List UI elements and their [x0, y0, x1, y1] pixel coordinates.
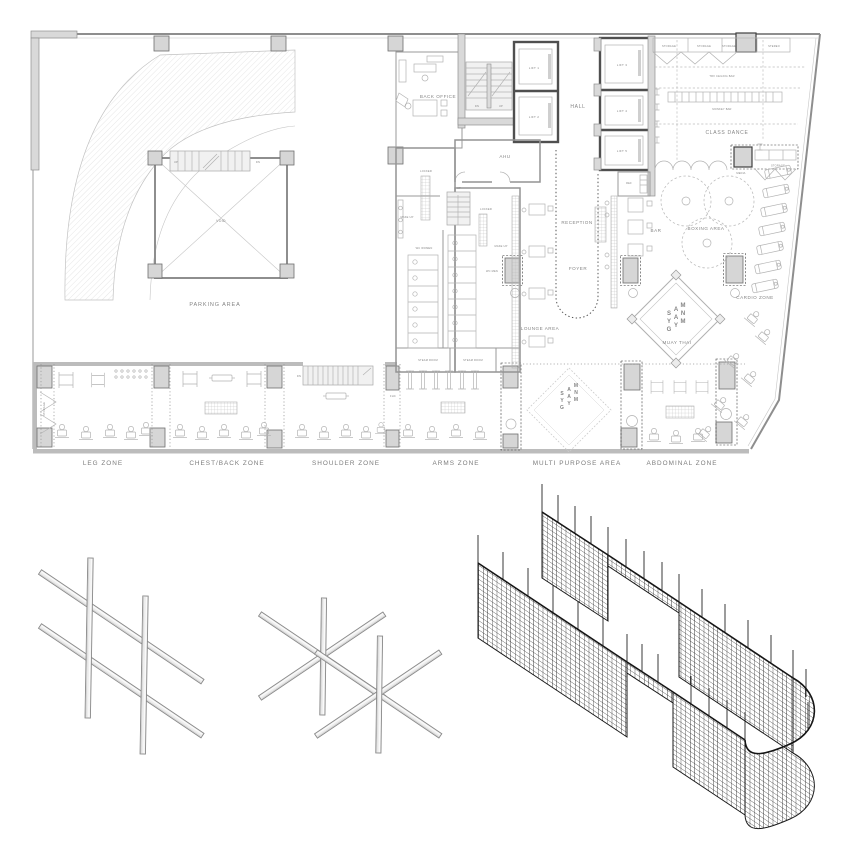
boxing-area: BOXING AREA	[661, 176, 754, 268]
svg-text:M: M	[681, 303, 686, 309]
svg-text:M: M	[574, 383, 578, 389]
back-office-furniture	[396, 56, 447, 116]
floor-plan-drawing: PARKING AREA VOID UP DN FHC	[0, 0, 850, 850]
svg-text:Y: Y	[674, 323, 678, 329]
label-cardio: CARDIO ZONE	[736, 295, 773, 300]
label-core-dn: DN	[475, 104, 479, 108]
label-stereo: STEREO	[768, 44, 780, 48]
label-lift-2: LIFT 2	[529, 115, 539, 119]
label-zone-chest: CHEST/BACK ZONE	[189, 460, 264, 467]
ring-monogram-2: S Y G A A Y M N M	[560, 383, 578, 411]
label-storage-2: STORAGE	[697, 44, 711, 48]
label-ref: REF	[626, 181, 632, 185]
label-trx: TRX CEILING BAR	[709, 74, 734, 78]
toilet-stalls	[408, 235, 476, 348]
svg-text:A: A	[567, 387, 571, 393]
label-back-office: BACK OFFICE	[420, 94, 456, 99]
muay-thai-ring: S Y G A A Y M N M MUAY THAI	[627, 270, 725, 368]
svg-text:G: G	[667, 327, 672, 333]
svg-text:S: S	[667, 311, 671, 317]
label-bar: BAR	[651, 228, 662, 233]
label-zone-leg: LEG ZONE	[83, 460, 123, 467]
label-monkey-bar: MONKEY BAR	[712, 107, 731, 111]
axon-star-frame	[259, 598, 442, 753]
label-hall: HALL	[570, 104, 585, 110]
label-reception: RECEPTION	[561, 220, 592, 225]
label-stair-up: UP	[174, 160, 178, 164]
label-makeup-r: MAKE UP	[494, 244, 507, 248]
label-void: VOID	[216, 219, 226, 223]
svg-text:Y: Y	[560, 398, 564, 404]
svg-text:A: A	[674, 315, 679, 321]
label-lift-1: LIFT 1	[529, 66, 539, 70]
label-steam-1: STEAM ROOM	[418, 358, 438, 362]
gym-floorplan-sheet: PARKING AREA VOID UP DN FHC	[0, 0, 850, 850]
label-core-up: UP	[499, 104, 503, 108]
label-fhc: FHC	[390, 394, 396, 398]
label-foyer: FOYER	[569, 266, 588, 271]
svg-text:A: A	[674, 307, 679, 313]
svg-text:M: M	[681, 319, 686, 325]
label-lift-4: LIFT 4	[617, 109, 627, 113]
lounge-wall	[512, 196, 519, 368]
label-lift-3: LIFT 3	[617, 63, 627, 67]
locker-wc-block: LOCKER MAKE UP WC WOMEN UP LOCKER MAKE U…	[396, 148, 520, 372]
label-lift-5: LIFT 5	[617, 149, 627, 153]
strip-stair: DN	[297, 366, 373, 385]
label-wc-women: WC WOMEN	[416, 246, 433, 250]
label-makeup-l: MAKE UP	[400, 215, 413, 219]
label-parking: PARKING AREA	[189, 302, 240, 308]
monkey-bar-frame	[668, 92, 782, 102]
label-zone-multi... arms: ARMS ZONE	[433, 460, 480, 467]
label-storage-3: STORAGE	[722, 44, 736, 48]
label-steam-2: STEAM ROOM	[463, 358, 483, 362]
label-class-dance: CLASS DANCE	[706, 130, 749, 136]
label-wc-men: WC MEN	[486, 269, 498, 273]
foyer-path	[556, 150, 598, 318]
label-storage-1: STORAGE	[662, 44, 676, 48]
label-zone-abdominal: ABDOMINAL ZONE	[647, 460, 718, 467]
axon-mesh-wall	[478, 484, 814, 829]
lift-bank-left: LIFT 1 LIFT 2	[514, 42, 558, 142]
ahu-room: AHU	[455, 140, 540, 182]
label-stair-dn: DN	[256, 160, 260, 164]
curtain-arcs	[655, 161, 727, 170]
parking-stair: UP DN	[170, 151, 260, 171]
locker-stair: UP	[447, 186, 470, 225]
folding-doors	[653, 52, 737, 64]
svg-text:Y: Y	[667, 319, 671, 325]
parking-area: PARKING AREA VOID UP DN	[65, 50, 295, 308]
label-muay-thai: MUAY THAI	[662, 340, 691, 345]
label-lounge: LOUNGE AREA	[521, 326, 560, 331]
svg-text:A: A	[567, 394, 571, 400]
label-storage-4: STORAGE	[771, 164, 785, 168]
label-zone-multi: MULTI PURPOSE AREA	[533, 460, 622, 467]
label-locker-r: LOCKER	[480, 207, 492, 211]
axon-hash-frame	[38, 558, 204, 754]
svg-text:N: N	[574, 390, 578, 396]
ring-monogram-1: S Y G A A Y M N M	[667, 303, 686, 333]
label-storage-5: STORAGE	[42, 402, 46, 416]
label-ahu: AHU	[499, 154, 510, 159]
svg-text:Y: Y	[567, 401, 571, 407]
label-boxing: BOXING AREA	[688, 226, 725, 231]
label-locker-up: UP	[457, 186, 461, 190]
svg-text:S: S	[560, 391, 564, 397]
multi-purpose-ring: S Y G A A Y M N M	[527, 368, 611, 452]
core-stair: DN UP	[466, 62, 512, 110]
dumbbell-rack	[115, 370, 147, 378]
class-dance-area: STORAGE STORAGE STORAGE STEREO TRX CEILI…	[653, 38, 805, 180]
svg-text:N: N	[681, 311, 685, 317]
label-media: MEDIA	[736, 171, 745, 175]
svg-text:M: M	[574, 397, 578, 403]
svg-text:G: G	[560, 405, 564, 411]
ref-room: REF	[618, 172, 650, 196]
core-block: BACK OFFICE DN UP LIFT 1 LIFT 2 HALL	[396, 34, 655, 196]
label-strip-dn: DN	[297, 374, 301, 378]
label-zone-shoulder: SHOULDER ZONE	[312, 460, 380, 467]
label-locker-l: LOCKER	[420, 169, 432, 173]
reception-desk	[595, 207, 606, 242]
bar-counter	[611, 196, 617, 308]
